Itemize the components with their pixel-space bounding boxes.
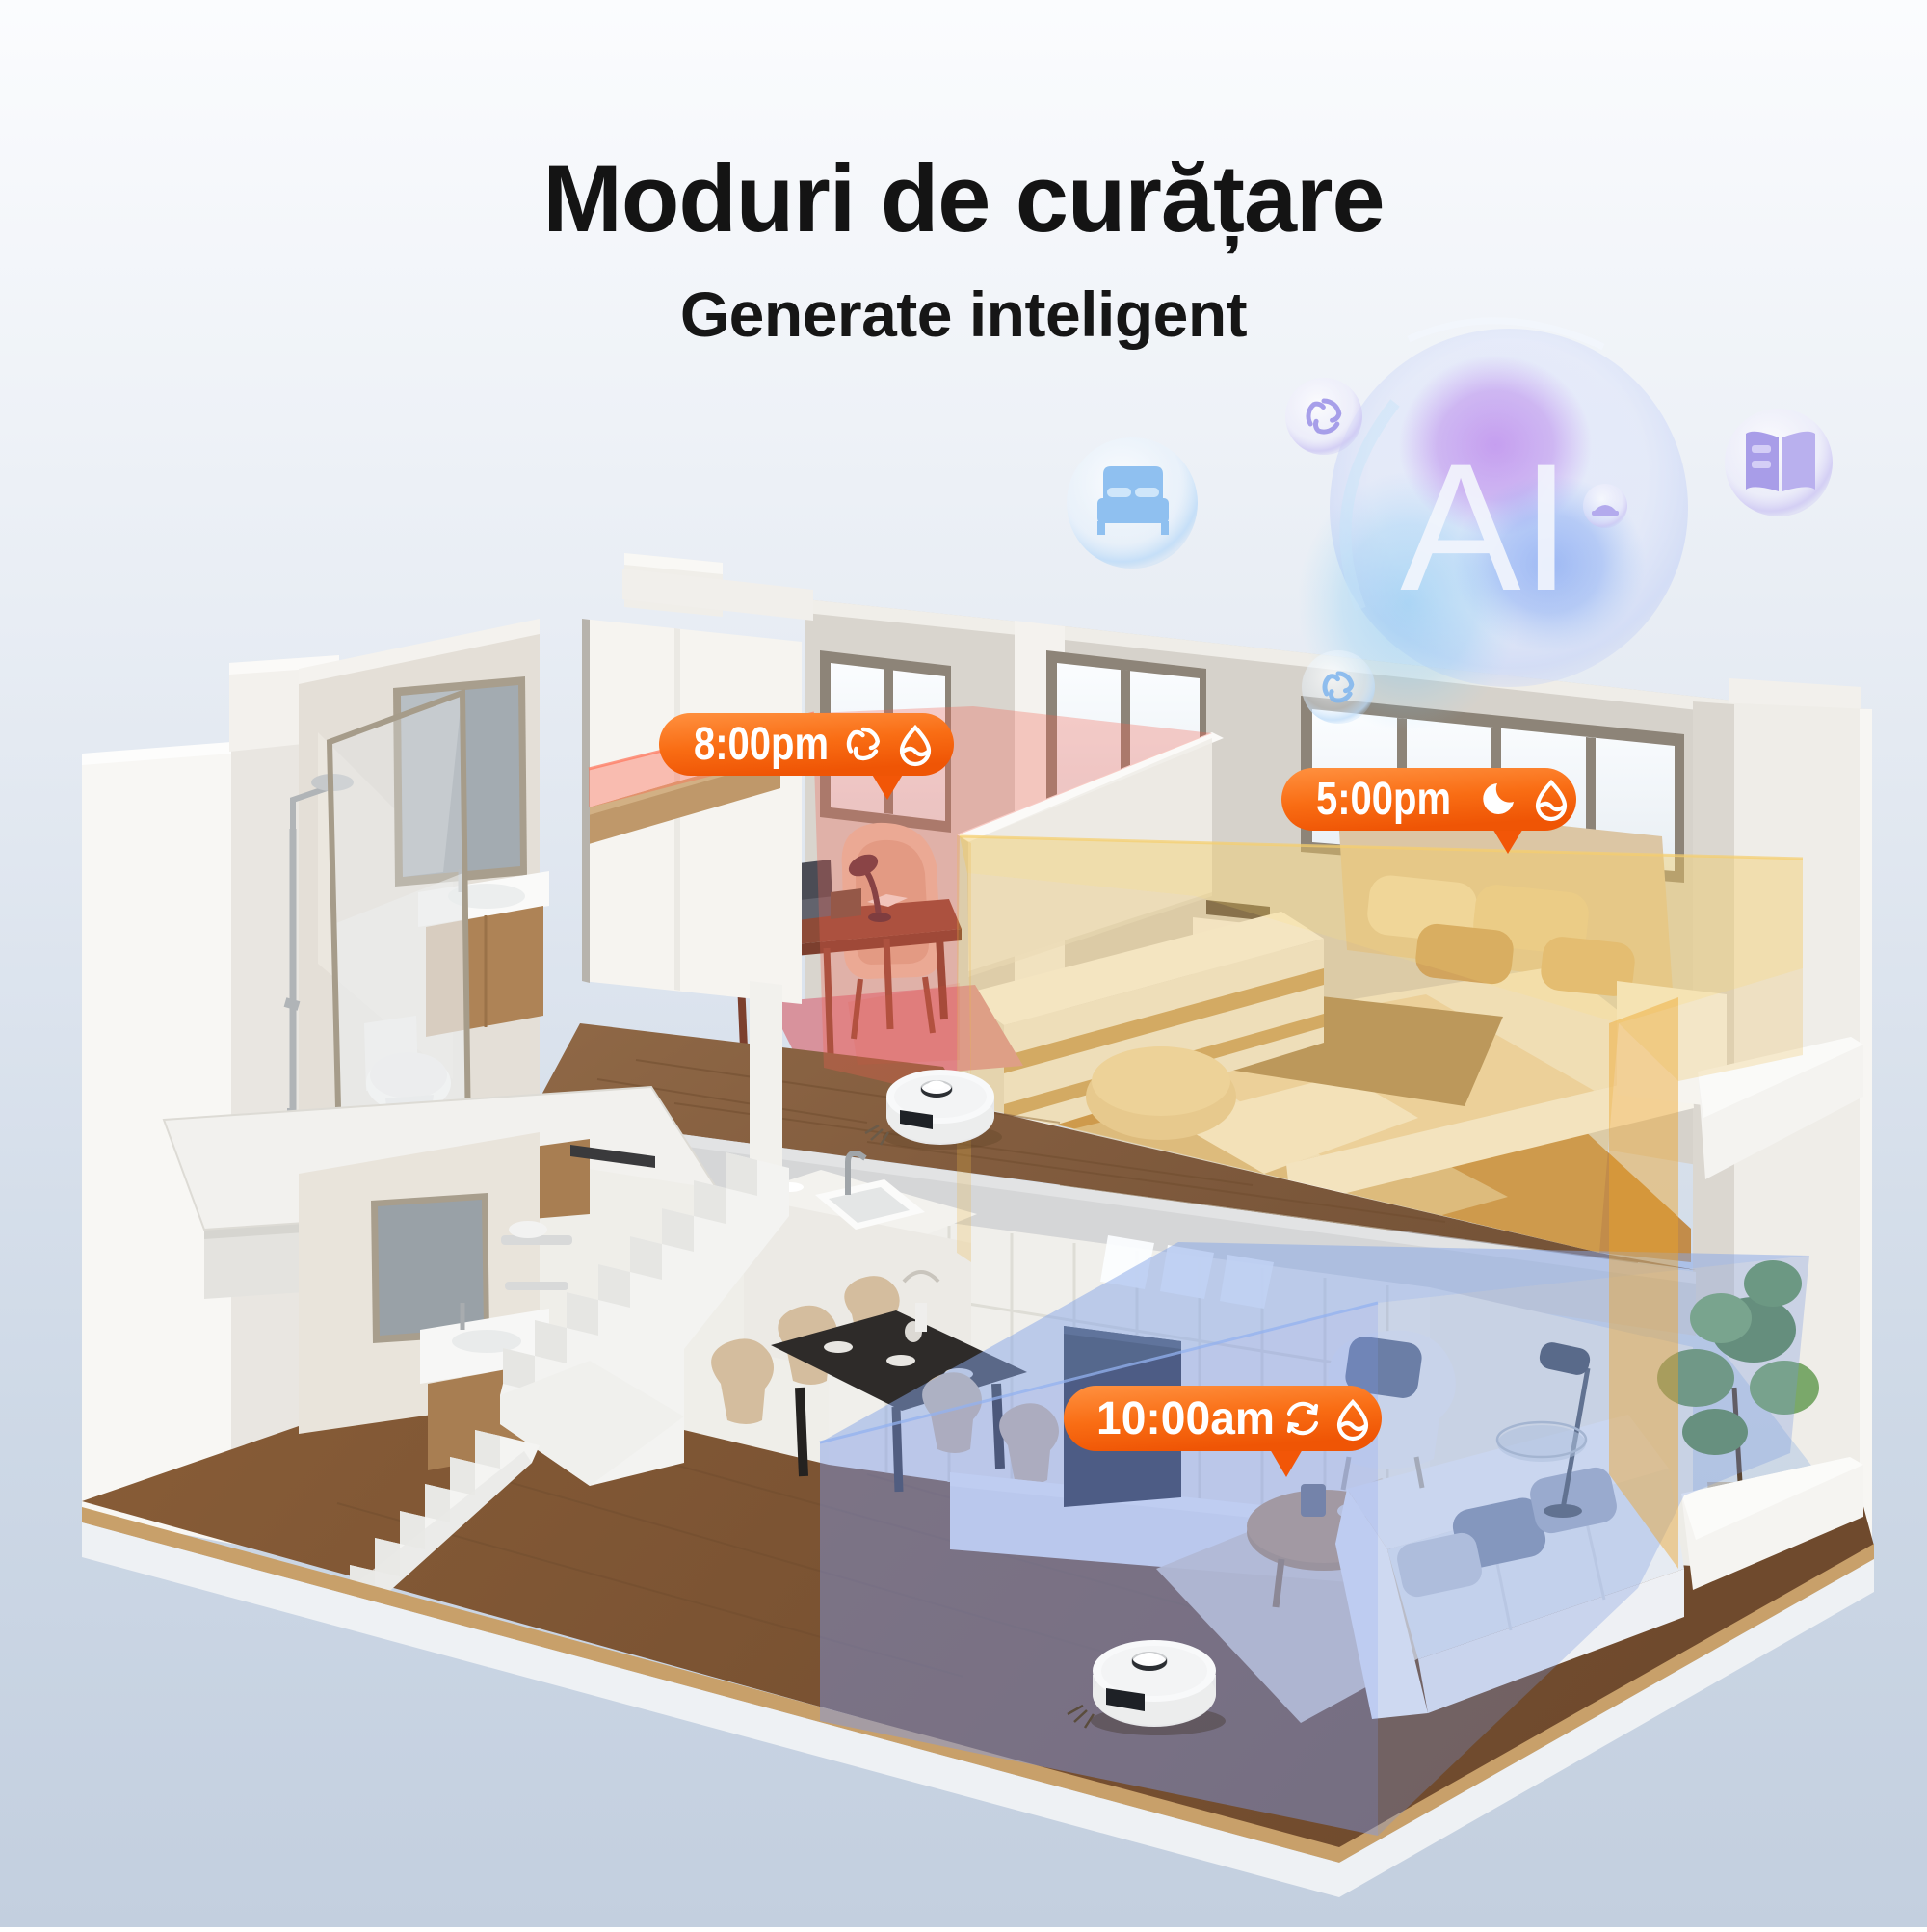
svg-text:AI: AI xyxy=(1400,426,1571,628)
svg-text:Generate inteligent: Generate inteligent xyxy=(680,278,1248,350)
svg-text:5:00pm: 5:00pm xyxy=(1316,774,1451,825)
svg-text:Moduri de curățare: Moduri de curățare xyxy=(542,145,1384,253)
svg-text:8:00pm: 8:00pm xyxy=(694,719,829,770)
svg-text:10:00am: 10:00am xyxy=(1096,1393,1275,1444)
